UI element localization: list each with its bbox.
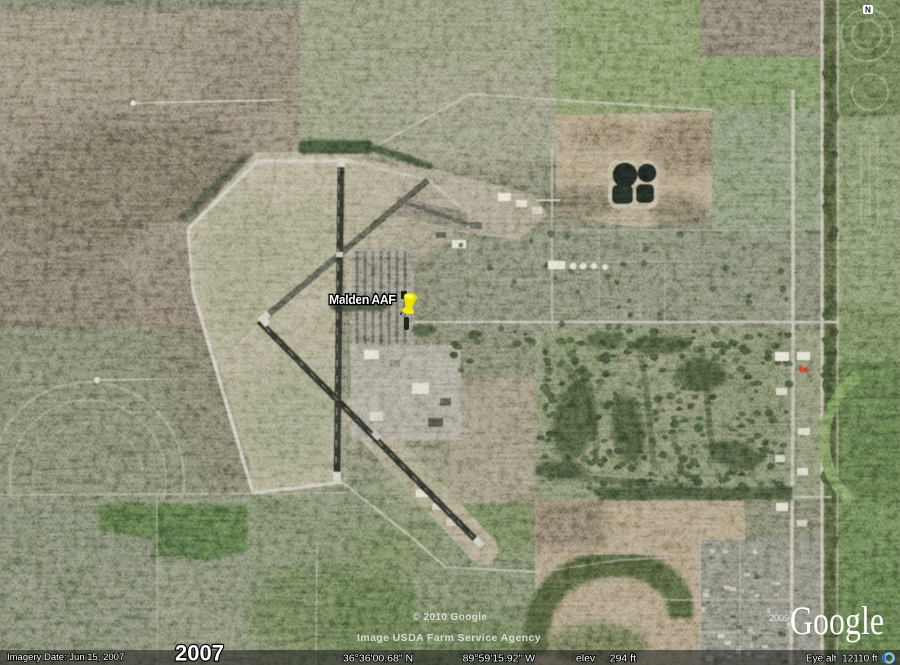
svg-text:Image USDA Farm Service Agency: Image USDA Farm Service Agency bbox=[357, 632, 541, 644]
svg-text:36°36'00.68" N: 36°36'00.68" N 89°59'15.92" W elev 294 f… bbox=[343, 653, 636, 665]
svg-text:Google: Google bbox=[790, 598, 884, 643]
svg-text:Eye alt 12110 ft: Eye alt 12110 ft bbox=[806, 654, 878, 665]
svg-text:2007: 2007 bbox=[175, 641, 224, 665]
svg-text:N: N bbox=[865, 5, 871, 14]
svg-text:2009: 2009 bbox=[769, 613, 789, 623]
svg-text:© 2010 Google: © 2010 Google bbox=[413, 612, 488, 623]
svg-text:Imagery Date: Jun 15, 2007: Imagery Date: Jun 15, 2007 bbox=[7, 652, 124, 663]
svg-text:Malden AAF: Malden AAF bbox=[329, 293, 396, 307]
